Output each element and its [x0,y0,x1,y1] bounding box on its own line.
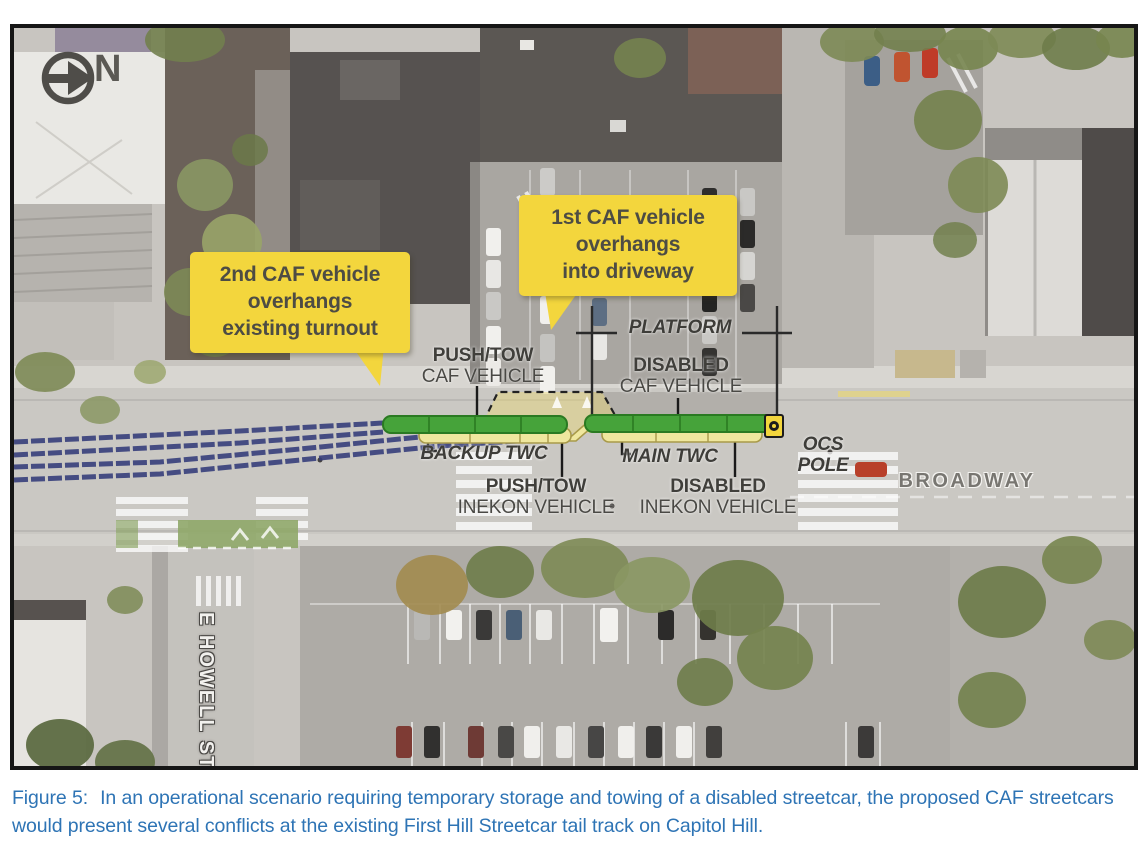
figure-caption-number: Figure 5: [12,787,88,809]
aerial-scenery [14,28,1134,766]
figure-caption: Figure 5:In an operational scenario requ… [12,784,1138,841]
aerial-map: N 2nd CAF vehicle overhangs existing tur… [10,24,1138,770]
figure-page: N 2nd CAF vehicle overhangs existing tur… [0,0,1148,862]
figure-caption-text: In an operational scenario requiring tem… [12,787,1114,837]
north-arrow-icon [45,55,93,101]
ocs-pole-marker [765,415,783,437]
